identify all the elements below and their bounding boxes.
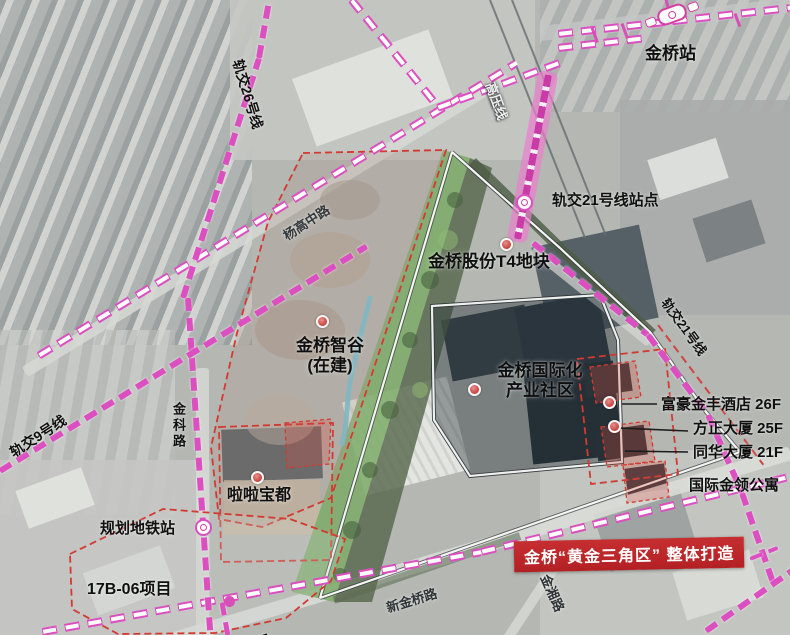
rail-terminus-dot (224, 596, 235, 607)
site-label-t4-plot: 金桥股份T4地块 (428, 252, 550, 272)
planning-map: 金桥站 轨交26号线 高压线 轨交21号线站点 金桥股份T4地块 金桥智谷 (在… (0, 0, 790, 635)
poi-marker-lalaport (251, 471, 264, 484)
poi-marker-community (468, 383, 481, 396)
building-label-goldcollar: 国际金领公寓 (689, 477, 779, 494)
metro-logo-icon (667, 9, 677, 19)
metro-logo-icon (521, 199, 528, 206)
headline-banner: 金桥“黄金三角区” 整体打造 (514, 537, 745, 573)
station-label-line21-stop: 轨交21号线站点 (552, 192, 659, 209)
site-label-community-line2: 产业社区 (484, 381, 596, 401)
site-label-intl-community: 金桥国际化 产业社区 (484, 361, 596, 400)
station-label-planned: 规划地铁站 (100, 520, 175, 537)
metro-logo-icon (200, 524, 207, 531)
station-tab (644, 16, 657, 28)
metro-station-icon (195, 519, 212, 536)
site-label-zhigu-status: (在建) (272, 356, 388, 376)
site-label-17b06: 17B-06项目 (87, 581, 171, 599)
station-label-jinqiao: 金桥站 (645, 44, 696, 64)
site-label-lalaport: 啦啦宝都 (227, 487, 291, 505)
road-label-jinke: 金科路 (170, 402, 185, 450)
site-label-zhigu-name: 金桥智谷 (272, 336, 388, 356)
poi-marker-zhigu (316, 315, 329, 328)
metro-station-icon (516, 194, 533, 211)
building-label-fangzheng: 方正大厦 25F (693, 420, 783, 437)
building-label-tonghua: 同华大厦 21F (693, 444, 783, 461)
building-label-hotel: 富豪金丰酒店 26F (661, 396, 781, 413)
poi-marker-fangzheng (608, 420, 621, 433)
site-label-community-line1: 金桥国际化 (484, 361, 596, 381)
poi-marker-hotel (603, 396, 616, 409)
poi-marker-t4 (500, 238, 513, 251)
site-label-zhigu: 金桥智谷 (在建) (272, 336, 388, 375)
